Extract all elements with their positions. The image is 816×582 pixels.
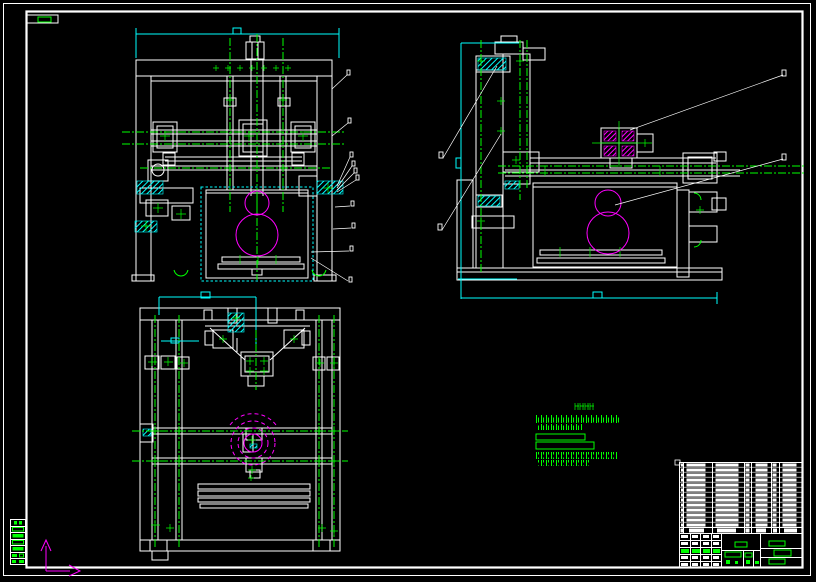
notes-line: [538, 460, 591, 466]
bom-rows-text: [680, 463, 803, 528]
cad-canvas: [0, 0, 816, 582]
notes-line: [534, 452, 618, 459]
notes-line: [538, 424, 583, 430]
notes-line: [534, 415, 619, 423]
